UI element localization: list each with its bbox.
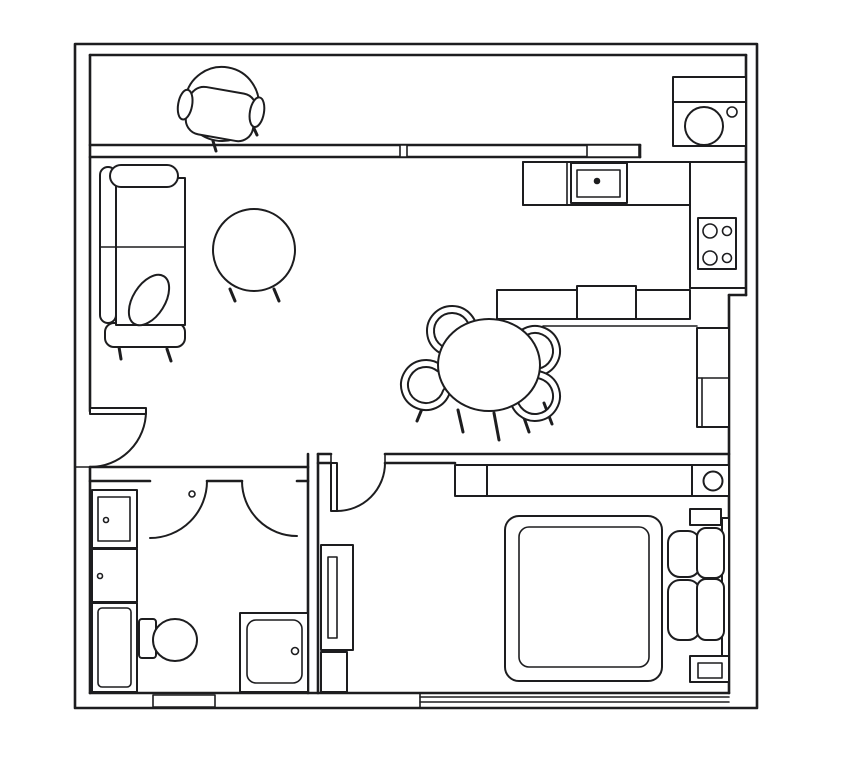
laundry-closet bbox=[673, 77, 746, 146]
bathroom-door-knob bbox=[189, 491, 195, 497]
bed-pillow bbox=[697, 579, 724, 640]
floor-plan-page bbox=[0, 0, 843, 759]
bedroom-shelf-box bbox=[455, 465, 487, 496]
toilet-bowl bbox=[153, 619, 197, 661]
dining-chair-leg bbox=[494, 413, 499, 440]
sofa-armrest bbox=[110, 165, 178, 187]
bed-frame bbox=[505, 516, 662, 681]
sofa-back bbox=[100, 167, 116, 323]
balcony-window bbox=[587, 145, 639, 157]
bed-pillow bbox=[697, 528, 724, 578]
bathroom-door-swing-arc bbox=[242, 481, 297, 536]
dining-table bbox=[438, 319, 540, 411]
bedroom-door-leaf bbox=[331, 463, 337, 511]
sofa-base bbox=[105, 323, 185, 347]
coffee-table-leg bbox=[230, 289, 235, 301]
coffee-table bbox=[213, 209, 295, 291]
sofa-leg bbox=[167, 349, 171, 361]
coffee-table-leg bbox=[274, 289, 279, 301]
bedroom-shelf bbox=[487, 465, 692, 496]
bed-pillow bbox=[668, 580, 700, 640]
bathroom-window bbox=[153, 695, 215, 707]
bathroom-cabinet bbox=[92, 549, 137, 602]
bathroom-door-swing-arc bbox=[150, 481, 207, 538]
floor-plan bbox=[0, 0, 843, 759]
dining-chair-leg bbox=[458, 410, 463, 432]
armchair-leg bbox=[213, 141, 216, 151]
bedroom-wall-box bbox=[690, 509, 721, 525]
sofa-leg bbox=[119, 347, 121, 359]
bed-pillow bbox=[668, 531, 700, 577]
bedroom-door-swing-arc bbox=[337, 463, 385, 511]
wardrobe-lower-box bbox=[321, 652, 347, 692]
kitchen-island-module bbox=[577, 286, 636, 319]
entry-door-swing-arc bbox=[90, 411, 146, 467]
entry-door-leaf bbox=[90, 408, 146, 414]
balcony-wall-divider bbox=[400, 145, 407, 157]
kitchen-faucet-dot bbox=[595, 179, 600, 184]
